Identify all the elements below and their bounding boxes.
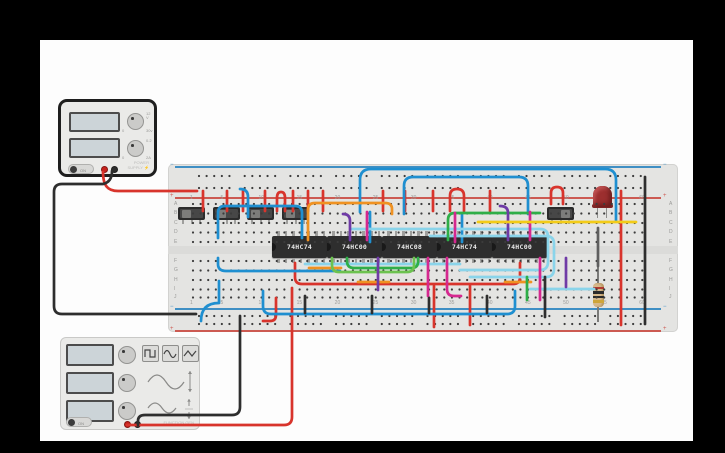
red-wire[interactable] [450,189,464,211]
red-wire[interactable] [277,192,285,211]
breadboard-holes[interactable] [192,175,643,325]
red-wire[interactable] [295,263,520,284]
black-wire[interactable] [54,171,196,314]
blue-wire[interactable] [201,281,219,321]
black-wire[interactable] [138,316,240,425]
red-wire[interactable] [103,172,197,191]
blue-wire[interactable] [404,177,528,214]
red-wire[interactable] [551,187,563,204]
circuit-workspace: 12 V 0 30v 0.2 0 2A ON POWER SUPPLY ⚡ [0,0,725,453]
wires-layer [0,0,725,453]
red-wire[interactable] [127,288,292,425]
blue-wire[interactable] [263,291,515,314]
purple-wire[interactable] [343,214,350,240]
